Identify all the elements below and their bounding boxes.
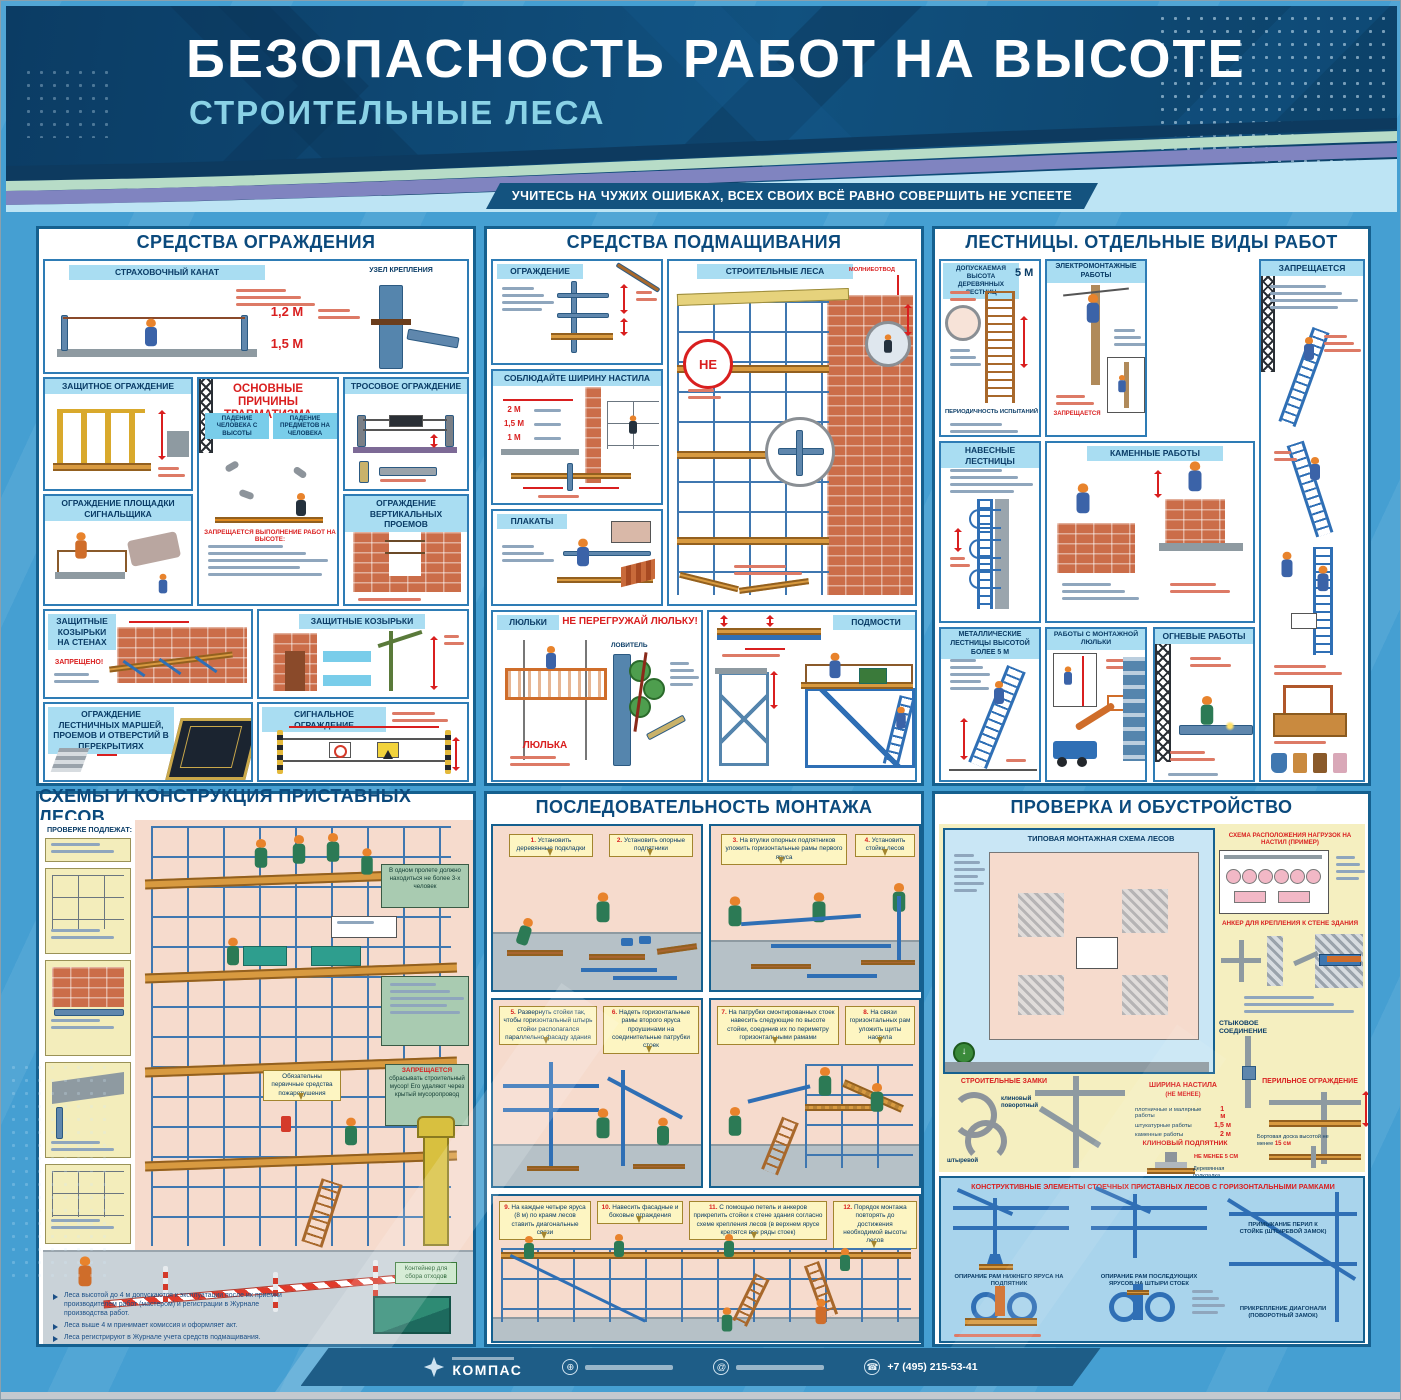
text-line [1062, 583, 1111, 586]
worker-figure [1303, 337, 1315, 361]
handed-frame [747, 1084, 810, 1103]
bucket-icon [1271, 753, 1287, 773]
base-bar [215, 517, 323, 523]
brick-wall [1057, 523, 1135, 573]
fine-print [729, 561, 819, 579]
joint-sleeve [1242, 1066, 1256, 1080]
text-line [1192, 1290, 1213, 1293]
text-line [390, 997, 464, 1000]
note-box: В одном пролете должно находиться не бол… [381, 864, 469, 908]
wall-opening [389, 532, 421, 576]
dimension-arrow [623, 285, 625, 313]
loads-diagram [1219, 850, 1329, 914]
lineman-figure [1086, 294, 1101, 324]
section-title-prohibited: ЗАПРЕЩАЕТСЯ [1261, 261, 1363, 276]
column [379, 285, 403, 369]
ground-line [949, 769, 1037, 771]
text-line [390, 1011, 460, 1014]
text-line [1336, 870, 1365, 873]
text-line [1244, 1003, 1334, 1006]
cause-chip-2: ПАДЕНИЕ ПРЕДМЕТОВ НА ЧЕЛОВЕКА [273, 413, 337, 439]
fine-print [1239, 992, 1359, 1017]
deck-width-box: СОБЛЮДАЙТЕ ШИРИНУ НАСТИЛА 2 М 1,5 М 1 М [491, 369, 663, 505]
text-line [1336, 877, 1359, 880]
cradles-box: ЛЮЛЬКИ НЕ ПЕРЕГРУЖАЙ ЛЮЛЬКУ! ЛЮЛЬКА ЛОВИ… [491, 610, 703, 782]
worker-figure [226, 938, 240, 967]
fine-print [533, 491, 603, 502]
signal-fence-box: СИГНАЛЬНОЕ ОГРАЖДЕНИЕ [257, 702, 469, 782]
wedge-lock-icon [965, 1120, 1007, 1162]
board-value: 15 см [1275, 1141, 1291, 1147]
inset-diagram [1107, 357, 1145, 413]
text-line [534, 423, 561, 426]
text-line [688, 389, 714, 392]
shaded-bay [1018, 975, 1064, 1015]
pipe-on-ground [613, 976, 677, 980]
fine-print [49, 669, 109, 687]
text-line [1168, 773, 1218, 776]
fine-print [353, 594, 461, 605]
text-line [1170, 583, 1216, 586]
down-arrow-badge: ↓ [953, 1042, 975, 1064]
purple-base [353, 447, 457, 453]
step-number: 4. [865, 837, 870, 844]
tagline-text: УЧИТЕСЬ НА ЧУЖИХ ОШИБКАХ, ВСЕХ СВОИХ ВСЁ… [512, 189, 1072, 203]
wedge-value: не менее 5 см [1191, 1154, 1241, 1160]
worker-figure [344, 1118, 358, 1147]
worker-inset-circle [865, 321, 911, 367]
deck-section [501, 449, 579, 455]
safety-hoop [969, 509, 1001, 529]
section-title-signalman: ОГРАЖДЕНИЕ ПЛОЩАДКИ СИГНАЛЬЩИКА [45, 496, 191, 521]
rule-item: Леса выше 4 м принимает комиссия и оформ… [53, 1322, 303, 1331]
text-line [1270, 285, 1326, 288]
worker-figure [1280, 552, 1293, 578]
fence-base [53, 463, 151, 471]
cross-pipe [1035, 1090, 1125, 1096]
scaffold-post [897, 896, 901, 962]
prohibited-box: ЗАПРЕЩАЕТСЯ [1259, 259, 1365, 782]
opening-railing [180, 726, 242, 768]
section-title-trestles: ПОДМОСТИ [833, 615, 917, 630]
text-line [1244, 996, 1314, 999]
forbidden-note-title: ЗАПРЕЩАЕТСЯ [402, 1067, 452, 1074]
wooden-pad [751, 964, 811, 969]
worker-figure [545, 646, 557, 670]
crate [1273, 713, 1347, 737]
load-p1 [1290, 869, 1305, 884]
text-line [954, 875, 978, 878]
text-line [502, 294, 544, 297]
step-number: 10. [602, 1204, 611, 1211]
building-facade [1123, 657, 1145, 761]
text-line [950, 363, 981, 366]
text-line [51, 843, 100, 846]
text-line [236, 296, 301, 299]
panel-title: СХЕМЫ И КОНСТРУКЦИЯ ПРИСТАВНЫХ ЛЕСОВ [39, 794, 473, 820]
railing-title: ПЕРИЛЬНОЕ ОГРАЖДЕНИЕ [1257, 1078, 1363, 1086]
text-line [1270, 306, 1338, 309]
loads-legend [1331, 852, 1363, 884]
check-item [45, 868, 131, 954]
step-text: Надеть горизонтальные рамы второго яруса… [612, 1009, 690, 1049]
signalman-figure [74, 532, 88, 560]
panel-ladders: ЛЕСТНИЦЫ. ОТДЕЛЬНЫЕ ВИДЫ РАБОТ ДОПУСКАЕМ… [932, 226, 1371, 786]
horizontal-frame [741, 914, 861, 926]
montage-step-6: 6. Надеть горизонтальные рамы второго яр… [603, 1006, 699, 1054]
text-line [1062, 597, 1139, 600]
scaffold-deck [677, 537, 829, 545]
signage-strip [331, 916, 397, 938]
fine-print [1109, 325, 1145, 350]
text-line [1170, 590, 1230, 593]
dim-1-5m: 1,5 М [261, 337, 313, 352]
label-chip [323, 675, 371, 686]
canopy-frame-top [378, 630, 423, 648]
truck-wheel [1077, 757, 1087, 767]
fine-print [945, 419, 1035, 437]
step-text: На связи горизонтальных рам уложить щиты… [850, 1009, 911, 1041]
shaded-bay [1018, 893, 1064, 937]
text-line [390, 1004, 447, 1007]
text-line [950, 430, 1018, 433]
fine-print [1163, 769, 1249, 780]
striped-post [277, 730, 283, 774]
fine-print [945, 553, 971, 571]
fine-print [945, 465, 1035, 497]
fine-print [665, 658, 697, 690]
warning-sign [389, 415, 423, 427]
cradle-label: ЛЮЛЬКА [505, 740, 585, 752]
text-line [1270, 299, 1358, 302]
falling-figure [224, 460, 240, 473]
rope-post [241, 315, 248, 351]
loads-title: СХЕМА РАСПОЛОЖЕНИЯ НАГРУЗОК НА НАСТИЛ (п… [1219, 832, 1361, 846]
dimension-arrow [161, 411, 163, 459]
text-line [444, 635, 459, 638]
section-title-deck-width: СОБЛЮДАЙТЕ ШИРИНУ НАСТИЛА [493, 371, 661, 386]
fine-print [1001, 755, 1035, 766]
yellow-fence [57, 409, 145, 465]
text-line [51, 1026, 114, 1029]
steel-column [1155, 644, 1171, 762]
load-p2 [1278, 891, 1310, 903]
anchor-diagram-right [1293, 934, 1363, 988]
text-line [670, 683, 693, 686]
dimension-arrow [289, 726, 439, 728]
worker-figure [158, 574, 168, 594]
step-number: 9. [504, 1204, 509, 1211]
text-line [390, 990, 450, 993]
text-line [1056, 395, 1085, 398]
text-line [950, 659, 976, 662]
text-line [1192, 1304, 1225, 1307]
text-line [1274, 672, 1342, 675]
compass-logo-icon [423, 1356, 445, 1378]
rail [557, 313, 609, 318]
locks-title: СТРОИТЕЛЬНЫЕ ЗАМКИ [949, 1078, 1059, 1086]
rule-text: Леса выше 4 м принимает комиссия и оформ… [64, 1322, 237, 1331]
support-pipe [567, 463, 573, 491]
safety-hoop [969, 539, 1001, 559]
wooden-pad [507, 950, 563, 956]
opening-rail [385, 552, 425, 554]
text-line [722, 654, 780, 657]
hanging-ladders-box: НАВЕСНЫЕ ЛЕСТНИЦЫ [939, 441, 1041, 623]
fine-print [529, 419, 575, 430]
step-number: 8. [863, 1009, 868, 1016]
wooden-ladder-height: 5 М [1015, 267, 1039, 280]
rail [557, 293, 609, 298]
worker-figure [595, 1108, 611, 1139]
tests-label: ПЕРИОДИЧНОСТЬ ИСПЫТАНИЙ [945, 409, 1039, 416]
text-line [1192, 1311, 1218, 1314]
email-text-placeholder [736, 1365, 824, 1370]
fence-box: ОГРАЖДЕНИЕ [491, 259, 663, 365]
worker-figure [728, 1107, 743, 1137]
post-bar [1335, 1192, 1339, 1322]
platform-railing [57, 550, 127, 572]
masonry-works-box: КАМЕННЫЕ РАБОТЫ [1045, 441, 1255, 623]
deck-support [717, 635, 821, 640]
cable-line [363, 429, 447, 431]
tool-icon [1313, 753, 1327, 773]
montage-step-9: 9. На каждые четыре яруса (8 м) по краям… [499, 1201, 591, 1240]
joint-pipe [1245, 1036, 1251, 1070]
text-line [510, 763, 570, 766]
brush-icon [1293, 753, 1307, 773]
step-text: На патрубки смонтированных стоек навесит… [727, 1009, 834, 1041]
support-shoe [621, 938, 633, 946]
step-ladder [1313, 547, 1333, 655]
section-title-cradle-works: РАБОТЫ С МОНТАЖНОЙ ЛЮЛЬКИ [1047, 629, 1145, 650]
page-title: БЕЗОПАСНОСТЬ РАБОТ НА ВЫСОТЕ [186, 28, 1245, 90]
text-line [1324, 335, 1347, 338]
material-stack [243, 946, 287, 966]
width-value-15m: 1,5 М [501, 419, 527, 428]
text-line [950, 469, 1002, 472]
section-title-safety-rope: СТРАХОВОЧНЫЙ КАНАТ [69, 265, 265, 280]
worker-figure [254, 839, 269, 869]
deck-board [551, 333, 613, 340]
label-chip [323, 651, 371, 662]
vertical-openings-box: ОГРАЖДЕНИЕ ВЕРТИКАЛЬНЫХ ПРОЕМОВ [343, 494, 469, 606]
text-line [1336, 863, 1360, 866]
text-line [954, 868, 985, 871]
dimension-arrow [623, 319, 625, 335]
width-value-1m: 1 М [501, 433, 527, 442]
text-line [502, 287, 534, 290]
montage-step-2: 2. Установить опорные подпятники [609, 834, 693, 857]
fine-print [1319, 331, 1359, 356]
forbidden-label: ЗАПРЕЩЕНО! [49, 659, 109, 667]
catcher-lever [646, 715, 686, 741]
trash-chute-hopper [417, 1116, 455, 1138]
fine-print [1051, 391, 1101, 409]
text-line [954, 882, 984, 885]
step-text: Порядок монтажа повторять до достижения … [843, 1204, 906, 1244]
background-dot-pattern [7, 1061, 111, 1281]
mason-figure [1075, 483, 1091, 514]
element-label-4: ПРИКРЕПЛЕНИЕ ДИАГОНАЛИ (ПОВОРОТНЫЙ ЗАМОК… [1237, 1306, 1329, 1320]
striped-post [445, 730, 451, 774]
cause-chip-1: ПАДЕНИЕ ЧЕЛОВЕКА С ВЫСОТЫ [205, 413, 269, 439]
fine-print [46, 929, 130, 939]
fire-extinguisher [281, 1116, 291, 1132]
text-line [510, 756, 556, 759]
wooden-ladders-box: ДОПУСКАЕМАЯ ВЫСОТА ДЕРЕВЯННЫХ ЛЕСТНИЦ 5 … [939, 259, 1041, 437]
worker-figure [613, 1234, 625, 1258]
panel-fencing-means: СРЕДСТВА ОГРАЖДЕНИЯ СТРАХОВОЧНЫЙ КАНАТ У… [36, 226, 476, 786]
worker-figure [595, 892, 611, 923]
text-line [1274, 741, 1326, 744]
lock-wedge-label: клиновый поворотный [1001, 1096, 1059, 1110]
fine-print [1269, 737, 1359, 748]
trestles-box: ПОДМОСТИ [707, 610, 917, 782]
text-line [1274, 458, 1297, 461]
text-line [1006, 759, 1026, 762]
text-line [337, 921, 374, 924]
text-line [208, 552, 306, 555]
legend-cell [1076, 937, 1118, 969]
catcher-roller [643, 678, 665, 700]
width-value-2m: 2 М [501, 405, 527, 414]
worker-figure [1309, 457, 1321, 481]
safety-hoop [969, 569, 1001, 589]
person-silhouette [295, 493, 307, 517]
text-line [318, 309, 350, 312]
person-silhouette [628, 415, 638, 434]
lifted-frame [607, 1077, 683, 1120]
warning-sign [377, 742, 399, 758]
horizontal-frame [771, 944, 891, 948]
step-number: 7. [721, 1009, 726, 1016]
fine-print [46, 843, 130, 853]
section-title-wall-canopies: ЗАЩИТНЫЕ КОЗЫРЬКИ НА СТЕНАХ [48, 614, 116, 650]
width-value: 2 м [1220, 1131, 1231, 1138]
montage-step-11: 11. С помощью петель и анкеров прикрепит… [689, 1201, 827, 1240]
text-line [734, 572, 802, 575]
element-label-3: ПРИМЫКАНИЕ ПЕРИЛ К СТОЙКЕ (ШТЫРЕВОЙ ЗАМО… [1237, 1222, 1329, 1236]
pipe-on-ground [807, 974, 877, 978]
text-line [534, 437, 561, 440]
turnbuckle [359, 461, 369, 483]
step-number: 2. [617, 837, 622, 844]
canopies-box: ЗАЩИТНЫЕ КОЗЫРЬКИ [257, 609, 469, 699]
worker-figure [523, 1236, 535, 1260]
montage-scene-2: 3. На втулки опорных подпятников уложить… [709, 824, 921, 992]
dimension-arrow [523, 487, 563, 489]
overload-warning: НЕ ПЕРЕГРУЖАЙ ЛЮЛЬКУ! [559, 616, 701, 628]
text-line [51, 929, 100, 932]
legend-lines [1187, 1286, 1223, 1318]
montage-step-10: 10. Навесить фасадные и боковые огражден… [597, 1201, 683, 1224]
dimension-arrow [907, 305, 909, 335]
tool-icon [1333, 753, 1347, 773]
text-line [51, 850, 114, 853]
text-line [950, 356, 976, 359]
fine-print [313, 305, 369, 323]
rung-inset-circle [945, 305, 981, 341]
truck-wheel [1057, 757, 1067, 767]
text-line [380, 479, 426, 482]
cradle-works-box: РАБОТЫ С МОНТАЖНОЙ ЛЮЛЬКИ [1045, 627, 1147, 782]
falling-figure [238, 489, 254, 501]
fire-callout: Обязательны первичные средства пожаротуш… [263, 1070, 341, 1101]
support-shoe [987, 1254, 1003, 1264]
load-p2 [1234, 891, 1266, 903]
text-line [54, 673, 89, 676]
text-line [502, 301, 554, 304]
anchor-bolt [1327, 956, 1361, 962]
wooden-pad [861, 960, 915, 965]
text-line [502, 308, 542, 311]
text-line [670, 669, 694, 672]
worker-figure [870, 1083, 885, 1113]
fine-print [529, 405, 575, 416]
panel-title: СРЕДСТВА ПОДМАЩИВАНИЯ [487, 229, 921, 255]
wall-hatch [1267, 936, 1283, 986]
text-line [1056, 402, 1094, 405]
text-line [51, 1019, 100, 1022]
text-line [950, 483, 1033, 486]
rule-text: Леса регистрируют в Журнале учета средст… [64, 1334, 260, 1343]
text-line [392, 719, 448, 722]
dimension-arrow [129, 621, 189, 623]
dim-1-2m: 1,2 М [261, 305, 313, 320]
shaded-bay [1122, 975, 1168, 1015]
brick-column [585, 387, 601, 483]
worker-figure [839, 1248, 851, 1272]
fine-print [1269, 447, 1299, 465]
hanging-sign [1291, 613, 1317, 629]
metal-ladders-box: МЕТАЛЛИЧЕСКИЕ ЛЕСТНИЦЫ ВЫСОТОЙ БОЛЕЕ 5 М [939, 627, 1041, 782]
text-line [1062, 590, 1125, 593]
step-number: 11. [709, 1204, 718, 1211]
material-stack [311, 946, 361, 966]
rule-text: Леса высотой до 4 м допускаются к эксплу… [64, 1292, 303, 1319]
website-text-placeholder [585, 1365, 673, 1370]
text-line [954, 854, 974, 857]
brand-name: КОМПАС [452, 1362, 522, 1378]
step-number: 3. [733, 837, 738, 844]
fine-print [1185, 653, 1239, 671]
poster-board [611, 521, 651, 543]
section-title-attachment-node: УЗЕЛ КРЕПЛЕНИЯ [341, 267, 461, 275]
section-title-fence: ОГРАЖДЕНИЕ [497, 264, 583, 279]
forbidden-note-text: сбрасывать строительный мусор! Его удаля… [389, 1075, 465, 1098]
fine-print [497, 283, 553, 315]
mason-figure [1187, 461, 1203, 492]
montage-step-12: 12. Порядок монтажа повторять до достиже… [833, 1201, 917, 1249]
check-item [45, 838, 131, 862]
text-line [502, 545, 534, 548]
worker-figure [576, 539, 590, 568]
text-line [1190, 657, 1221, 660]
trestle-top [715, 668, 767, 674]
section-title-canopies: ЗАЩИТНЫЕ КОЗЫРЬКИ [299, 614, 425, 629]
fine-print [375, 475, 455, 486]
panel-title: ПРОВЕРКА И ОБУСТРОЙСТВО [935, 794, 1368, 820]
step-number: 5. [510, 1009, 515, 1016]
text-line [1336, 856, 1355, 859]
section-title-posters: ПЛАКАТЫ [497, 514, 567, 529]
text-line [1170, 751, 1205, 754]
fine-print [1269, 661, 1359, 679]
section-title-signal-fence: СИГНАЛЬНОЕ ОГРАЖДЕНИЕ [262, 707, 386, 732]
electro-warning: ЗАПРЕЩАЕТСЯ [1051, 411, 1103, 418]
dimension-arrow [455, 738, 457, 770]
